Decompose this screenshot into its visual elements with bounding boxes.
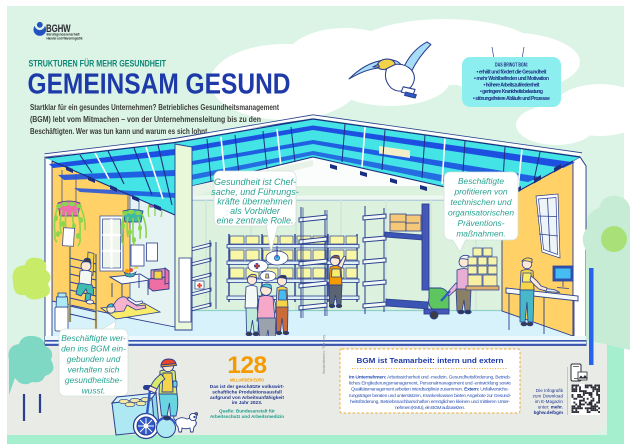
svg-text:Präventions-: Präventions- bbox=[457, 218, 504, 228]
svg-text:maßnahmen.: maßnahmen. bbox=[456, 229, 505, 239]
svg-text:gebunden und: gebunden und bbox=[67, 354, 121, 364]
svg-text:eine zentrale Rolle.: eine zentrale Rolle. bbox=[216, 216, 293, 226]
svg-text:Qualitätsmanagement arbeiten i: Qualitätsmanagement arbeiten interdiszip… bbox=[351, 387, 509, 393]
svg-text:nehmen (KMU), ein BGM aufzuset: nehmen (KMU), ein BGM aufzusetzen. bbox=[395, 405, 465, 411]
svg-text:Beschäftigten. Wer was tun kan: Beschäftigten. Wer was tun kann und waru… bbox=[30, 126, 209, 136]
svg-text:gesundheitsbe-: gesundheitsbe- bbox=[65, 375, 122, 385]
svg-text:128: 128 bbox=[227, 352, 266, 379]
svg-text:Illustrationen: Territory: Illustrationen: Territory bbox=[321, 335, 326, 374]
svg-text:MILLIARDEN EURO: MILLIARDEN EURO bbox=[230, 378, 264, 384]
svg-text:• mehr Wohlbefinden und Motiva: • mehr Wohlbefinden und Motivation bbox=[474, 76, 549, 82]
svg-text:Handel und Warenlogistik: Handel und Warenlogistik bbox=[47, 36, 84, 41]
svg-text:technischen und: technischen und bbox=[451, 197, 512, 207]
svg-text:Das ist der geschätzte volkswi: Das ist der geschätzte volkswirt- bbox=[210, 384, 285, 390]
svg-text:heitsförderung, Betriebsnachba: heitsförderung, Betriebsnachbarschaften … bbox=[350, 399, 510, 405]
svg-text:Die Infografik: Die Infografik bbox=[536, 388, 564, 393]
svg-text:zum Download: zum Download bbox=[533, 394, 564, 399]
svg-text:unter: mehr.: unter: mehr. bbox=[538, 405, 563, 410]
svg-text:• störungsfreiere Abläufe und: • störungsfreiere Abläufe und Prozesse bbox=[473, 96, 550, 102]
svg-text:• höhere Arbeitszufriedenheit: • höhere Arbeitszufriedenheit bbox=[484, 83, 540, 89]
svg-text:(BGM) lebt vom Mitmachen – von: (BGM) lebt vom Mitmachen – von der Unter… bbox=[30, 114, 261, 124]
svg-text:Beschäftigte: Beschäftigte bbox=[458, 176, 504, 186]
svg-text:den ins BGM ein-: den ins BGM ein- bbox=[61, 344, 126, 354]
svg-text:verhalten sich: verhalten sich bbox=[68, 365, 120, 375]
svg-text:bghw.de/bgm: bghw.de/bgm bbox=[534, 410, 563, 415]
svg-text:organisatorischen: organisatorischen bbox=[448, 208, 514, 218]
svg-text:sache, und Führungs-: sache, und Führungs- bbox=[211, 187, 299, 197]
svg-text:als Vorbilder: als Vorbilder bbox=[230, 206, 281, 216]
svg-text:GEMEINSAM GESUND: GEMEINSAM GESUND bbox=[28, 69, 291, 101]
svg-text:Startklar für ein gesundes Unt: Startklar für ein gesundes Unternehmen? … bbox=[30, 102, 279, 112]
svg-text:wusst.: wusst. bbox=[82, 386, 106, 396]
svg-text:Quelle: Bundesanstalt für: Quelle: Bundesanstalt für bbox=[219, 409, 275, 414]
svg-text:liches Eingliederungsmanagemen: liches Eingliederungsmanagement, Persona… bbox=[349, 381, 511, 387]
svg-text:Arbeitsschutz und Arbeitsmediz: Arbeitsschutz und Arbeitsmedizin bbox=[210, 414, 284, 419]
svg-text:BGM ist Teamarbeit: intern und: BGM ist Teamarbeit: intern und extern bbox=[357, 356, 504, 365]
svg-text:im Jahr 2023.: im Jahr 2023. bbox=[232, 400, 262, 406]
svg-text:rungsträger beraten und unters: rungsträger beraten und unterstützen, Kr… bbox=[349, 393, 511, 399]
svg-text:im E-Magazin: im E-Magazin bbox=[535, 399, 564, 404]
svg-text:Im Unternehmen: Arbeitssicherh: Im Unternehmen: Arbeitssicherheit und -m… bbox=[349, 375, 511, 381]
svg-text:aufgrund von Arbeitsunfähigkei: aufgrund von Arbeitsunfähigkeit bbox=[210, 395, 284, 401]
svg-text:schaftliche Produktionsausfall: schaftliche Produktionsausfall bbox=[212, 389, 282, 395]
svg-text:Beschäftigte wer-: Beschäftigte wer- bbox=[61, 333, 126, 343]
svg-text:Gesundheit ist Chef-: Gesundheit ist Chef- bbox=[214, 177, 296, 187]
svg-text:• geringere Krankheitsbelastun: • geringere Krankheitsbelastung bbox=[480, 89, 543, 95]
svg-text:DAS BRINGT BGM:: DAS BRINGT BGM: bbox=[495, 63, 528, 69]
svg-text:kräfte übernehmen: kräfte übernehmen bbox=[217, 197, 293, 207]
svg-text:profitieren von: profitieren von bbox=[453, 187, 507, 197]
svg-text:• erhält und fördert die Gesun: • erhält und fördert die Gesundheit bbox=[477, 69, 547, 75]
